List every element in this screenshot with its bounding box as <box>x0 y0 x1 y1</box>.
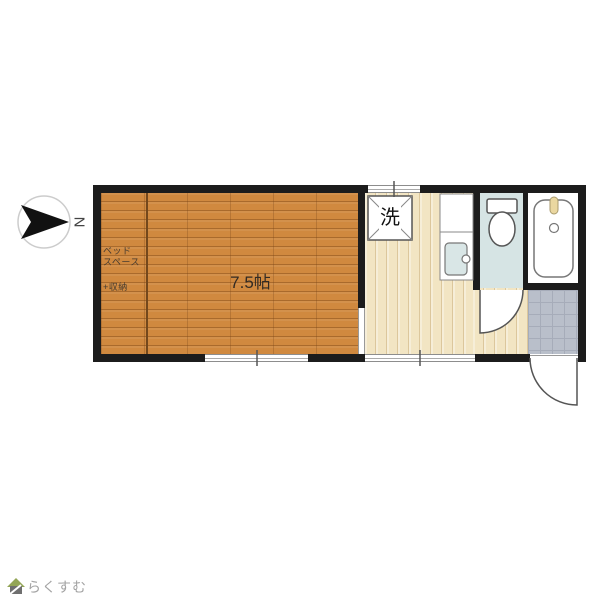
kitchen-counter <box>440 194 473 280</box>
room-size-label: 7.5帖 <box>193 268 308 293</box>
house-logo-icon <box>7 578 25 594</box>
washer-label: 洗 <box>379 206 401 230</box>
compass-icon: N <box>18 196 88 248</box>
bath-drain-icon <box>550 224 559 233</box>
bathtub-icon <box>534 197 573 277</box>
entry-door-arc <box>530 358 577 405</box>
toilet-door-arc <box>480 290 523 333</box>
sink-faucet-icon <box>462 255 470 263</box>
bed-space-label: ベッド スペース <box>103 246 140 267</box>
bath-faucet-icon <box>550 197 558 214</box>
brand-text: らくすむ <box>27 577 87 597</box>
plan-symbols: N <box>0 0 600 600</box>
floor-plan-page: { "floor_plan": { "room_label": "7.5帖", … <box>0 0 600 600</box>
compass-letter: N <box>71 217 88 228</box>
storage-label: +収納 <box>103 280 128 293</box>
floor-plan: N ベッド スペース +収納 7.5帖 洗 <box>0 0 600 600</box>
toilet-icon <box>487 199 517 246</box>
bed-space-line1: ベッド <box>103 246 140 257</box>
bed-space-line2: スペース <box>103 257 140 268</box>
